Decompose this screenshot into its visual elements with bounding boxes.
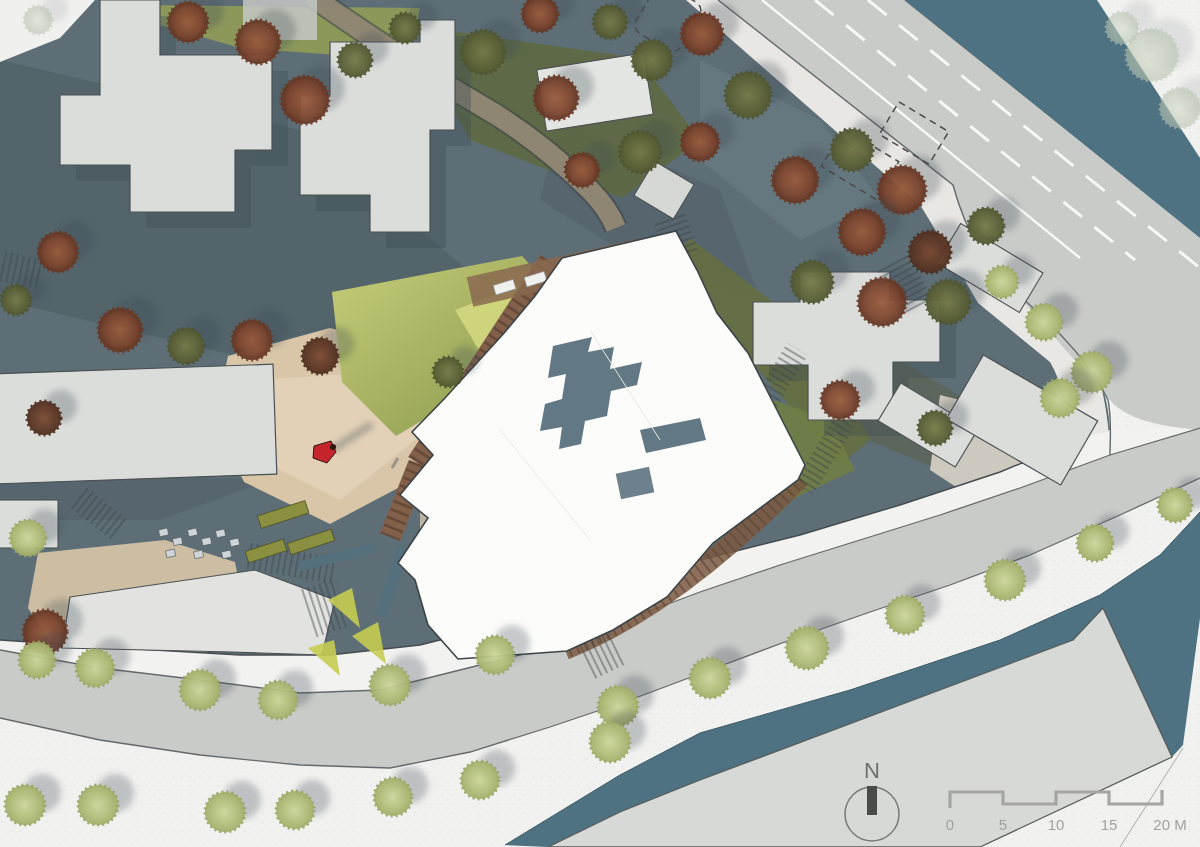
tree-icon [690, 658, 730, 698]
tree-icon [926, 280, 970, 324]
north-label: N [864, 758, 880, 783]
tree-icon [180, 670, 220, 710]
tree-icon [302, 338, 338, 374]
tree-icon [1, 285, 31, 315]
tree-icon [619, 131, 661, 173]
tree-icon [27, 401, 61, 435]
tree-icon [370, 665, 410, 705]
tree-icon [632, 40, 672, 80]
tree-icon [1026, 304, 1062, 340]
red-figure-head [330, 444, 336, 450]
tree-icon [5, 785, 45, 825]
tree-icon [205, 792, 245, 832]
tree-icon [276, 791, 314, 829]
tree-icon [1160, 88, 1200, 128]
tree-icon [168, 2, 208, 42]
tree-icon [886, 596, 924, 634]
tree-icon [476, 636, 514, 674]
tree-icon [534, 76, 578, 120]
tree-icon [236, 20, 280, 64]
tree-icon [24, 6, 52, 34]
site-plan-drawing: N 0 5 10 15 20 M [0, 0, 1200, 847]
tree-icon [78, 785, 118, 825]
tree-icon [968, 208, 1004, 244]
tree-icon [565, 153, 599, 187]
tree-icon [461, 30, 505, 74]
tree-icon [374, 778, 412, 816]
tree-icon [590, 722, 630, 762]
tree-icon [390, 13, 420, 43]
tree-icon [259, 681, 297, 719]
tree-icon [839, 209, 885, 255]
tree-icon [98, 308, 142, 352]
north-needle [867, 786, 877, 815]
tree-icon [10, 520, 46, 556]
tree-icon [681, 13, 723, 55]
scale-tick-5: 5 [999, 816, 1007, 833]
tree-icon [772, 157, 818, 203]
tree-icon [681, 123, 719, 161]
tree-icon [909, 231, 951, 273]
tree-icon [19, 642, 55, 678]
site-plan-canvas: N 0 5 10 15 20 M [0, 0, 1200, 847]
tree-icon [1041, 379, 1079, 417]
tree-icon [725, 72, 771, 118]
tree-icon [593, 5, 627, 39]
tree-icon [38, 232, 78, 272]
tree-icon [831, 129, 873, 171]
tree-icon [1106, 12, 1138, 44]
tree-icon [232, 320, 272, 360]
tree-icon [858, 278, 906, 326]
tree-icon [786, 627, 828, 669]
tree-icon [821, 381, 859, 419]
tree-icon [168, 328, 204, 364]
tree-icon [985, 560, 1025, 600]
scale-tick-0: 0 [946, 816, 954, 833]
tree-icon [791, 261, 833, 303]
tree-icon [433, 357, 463, 387]
tree-icon [986, 266, 1018, 298]
scale-tick-20m: 20 M [1153, 816, 1186, 833]
tree-icon [461, 761, 499, 799]
tree-icon [1158, 488, 1192, 522]
tree-icon [1077, 525, 1113, 561]
tree-icon [918, 411, 952, 445]
tree-icon [338, 43, 372, 77]
scale-tick-10: 10 [1048, 816, 1065, 833]
scale-tick-15: 15 [1101, 816, 1118, 833]
tree-icon [76, 649, 114, 687]
tree-icon [281, 76, 329, 124]
